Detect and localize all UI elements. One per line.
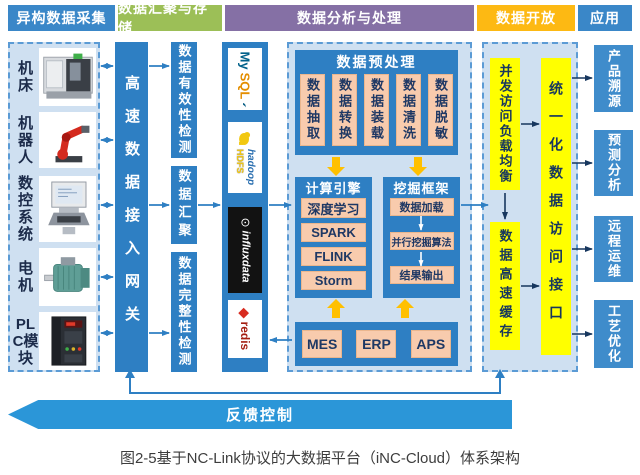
load-balancer-box: 并发访问负载均衡: [490, 58, 520, 190]
cnc-system-icon: [41, 179, 95, 239]
plc-module-label: PLC模块: [12, 316, 39, 367]
app-predictive-analysis: 预测分析: [594, 130, 633, 196]
plc-module-photo: [39, 312, 96, 370]
mining-parallel: 并行挖掘算法: [390, 232, 454, 250]
device-row-motor: 电机: [12, 248, 96, 306]
engine-spark: SPARK: [301, 223, 366, 242]
feedback-label: 反馈控制: [226, 404, 294, 425]
app-product-trace: 产品溯源: [594, 45, 633, 112]
hadoop-logo-text: hadoop: [245, 148, 255, 184]
step-mask: 数据脱敏: [428, 74, 453, 146]
cache-box: 数据高速缓存: [490, 222, 520, 350]
robot-arm-icon: [41, 115, 95, 165]
header-acquisition: 异构数据采集: [8, 5, 115, 31]
influxdata-logo-text: influxdata: [239, 231, 251, 283]
robot-photo: [39, 112, 96, 168]
motor-label: 电机: [12, 260, 39, 294]
mining-container: 挖掘框架 数据加载 并行挖掘算法 结果输出: [383, 177, 460, 298]
mining-title: 挖掘框架: [393, 177, 449, 198]
machine-tool-label: 机床: [12, 60, 39, 94]
cnc-system-photo: [39, 176, 96, 242]
header-apps-label: 应用: [590, 8, 620, 28]
mysql-logo-text-sql: SQL: [238, 72, 253, 99]
motor-photo: [39, 248, 96, 306]
system-mes: MES: [302, 330, 342, 358]
load-balancer-label: 并发访问负载均衡: [496, 64, 515, 184]
cnc-system-label: 数控系统: [12, 175, 39, 243]
cache-label: 数据高速缓存: [496, 229, 515, 343]
gateway-label: 高速数据接入网关: [121, 75, 142, 339]
redis-icon: ◆: [238, 308, 252, 319]
validity-check-label: 数据有效性检测: [175, 44, 194, 156]
engine-deep-learning: 深度学习: [301, 198, 366, 218]
architecture-diagram: 异构数据采集 数据汇聚与存储 数据分析与处理 数据开放 应用 机床 机器人: [0, 0, 640, 475]
integrity-check-box: 数据完整性检测: [171, 252, 197, 372]
mysql-logo-text-my: My: [238, 51, 253, 69]
feedback-banner: 反馈控制: [8, 400, 512, 429]
acquisition-panel: 机床 机器人: [8, 42, 100, 372]
influxdata-icon: ⊙: [238, 217, 252, 227]
validity-check-box: 数据有效性检测: [171, 42, 197, 158]
hadoop-elephant-icon: [239, 130, 252, 145]
integrity-check-label: 数据完整性检测: [175, 256, 194, 368]
device-row-cnc: 数控系统: [12, 176, 96, 242]
header-storage-label: 数据汇聚与存储: [118, 0, 222, 38]
mysql-dolphin-icon: [239, 102, 251, 107]
engine-title: 计算引擎: [305, 177, 361, 198]
header-acquisition-label: 异构数据采集: [17, 8, 107, 28]
device-row-machine-tool: 机床: [12, 48, 96, 106]
plc-module-icon: [43, 314, 93, 368]
device-row-plc: PLC模块: [12, 312, 96, 370]
preprocess-title: 数据预处理: [337, 50, 417, 74]
feedback-line: [125, 369, 505, 393]
redis-logo: ◆ redis: [228, 300, 262, 358]
mining-output: 结果输出: [390, 266, 454, 284]
header-analysis: 数据分析与处理: [225, 5, 474, 31]
unified-api-label: 统一化数据访问接口: [546, 81, 566, 333]
header-analysis-label: 数据分析与处理: [297, 8, 402, 28]
unified-api-box: 统一化数据访问接口: [541, 58, 571, 355]
redis-logo-text: redis: [238, 322, 252, 351]
step-extract: 数据抽取: [300, 74, 325, 146]
engine-flink: FLINK: [301, 247, 366, 266]
machine-tool-icon: [41, 51, 95, 103]
step-load: 数据装载: [364, 74, 389, 146]
preprocess-container: 数据预处理 数据抽取 数据转换 数据装载 数据清洗 数据脱敏: [295, 50, 458, 155]
aggregate-label: 数据汇聚: [175, 169, 194, 241]
app-remote-ops: 远程运维: [594, 216, 633, 282]
figure-caption: 图2-5基于NC-Link协议的大数据平台（iNC-Cloud）体系架构: [0, 447, 640, 468]
robot-label: 机器人: [12, 115, 39, 166]
device-row-robot: 机器人: [12, 112, 96, 168]
analysis-panel: 数据预处理 数据抽取 数据转换 数据装载 数据清洗 数据脱敏 计算引擎 深度学习…: [287, 42, 472, 372]
header-open-label: 数据开放: [496, 8, 556, 28]
step-transform: 数据转换: [332, 74, 357, 146]
hadoop-logo: hadoop HDFS: [228, 122, 262, 193]
systems-container: MES ERP APS: [295, 322, 458, 366]
engine-storm: Storm: [301, 271, 366, 290]
system-aps: APS: [411, 330, 451, 358]
preprocess-steps: 数据抽取 数据转换 数据装载 数据清洗 数据脱敏: [300, 74, 453, 146]
motor-icon: [41, 251, 95, 303]
header-apps: 应用: [578, 5, 632, 31]
mining-load: 数据加载: [390, 198, 454, 216]
influxdata-logo: ⊙ influxdata: [228, 207, 262, 293]
machine-tool-photo: [39, 48, 96, 106]
mysql-logo: MySQL: [228, 48, 262, 110]
gateway-bar: 高速数据接入网关: [115, 42, 148, 372]
aggregate-box: 数据汇聚: [171, 166, 197, 244]
app-process-optimization: 工艺优化: [594, 300, 633, 368]
step-clean: 数据清洗: [396, 74, 421, 146]
header-open: 数据开放: [477, 5, 575, 31]
system-erp: ERP: [356, 330, 396, 358]
engine-container: 计算引擎 深度学习 SPARK FLINK Storm: [295, 177, 372, 298]
header-storage: 数据汇聚与存储: [118, 5, 222, 31]
device-gateway-arrows: [101, 66, 113, 333]
hdfs-logo-text: HDFS: [235, 148, 245, 184]
